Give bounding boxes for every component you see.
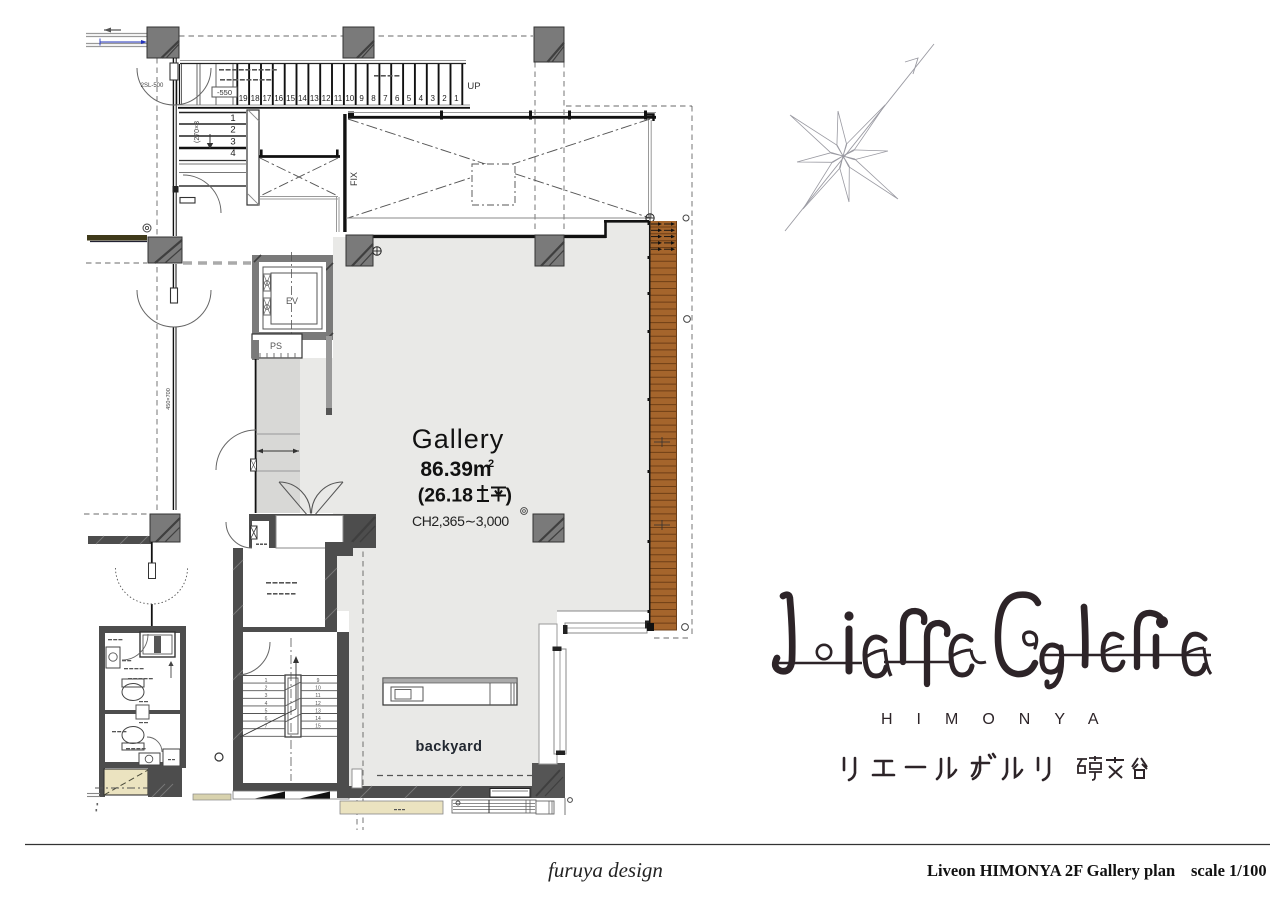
svg-text:(26.18: (26.18	[418, 485, 473, 507]
svg-text:9: 9	[359, 94, 364, 103]
svg-text:(270×3: (270×3	[194, 121, 201, 143]
svg-text:4: 4	[419, 94, 424, 103]
svg-text:CH2,365∼3,000: CH2,365∼3,000	[412, 513, 509, 529]
svg-text:450×700: 450×700	[166, 388, 172, 410]
svg-text:10: 10	[315, 686, 321, 692]
svg-text:scale 1/100: scale 1/100	[1191, 861, 1267, 880]
svg-text:3: 3	[230, 136, 235, 147]
svg-text:19: 19	[239, 94, 248, 103]
svg-text:9: 9	[317, 678, 320, 684]
svg-text:HIMONYA: HIMONYA	[881, 711, 1122, 728]
svg-text:16: 16	[274, 94, 283, 103]
svg-text:6: 6	[395, 94, 400, 103]
svg-text:): )	[506, 485, 513, 507]
svg-text:1: 1	[230, 113, 235, 124]
svg-text:EV: EV	[286, 296, 298, 306]
svg-text:14: 14	[298, 94, 307, 103]
svg-text:furuya design: furuya design	[548, 858, 663, 882]
svg-text:2SL-500: 2SL-500	[141, 83, 164, 89]
svg-text:2: 2	[488, 458, 494, 470]
svg-text:4: 4	[265, 701, 268, 707]
svg-text:10: 10	[345, 94, 354, 103]
svg-text:8: 8	[371, 94, 376, 103]
svg-text:6: 6	[265, 716, 268, 722]
svg-text:PS: PS	[270, 341, 282, 351]
svg-text:7: 7	[383, 94, 388, 103]
svg-text:2: 2	[265, 686, 268, 692]
svg-text:86.39m: 86.39m	[420, 458, 491, 481]
svg-text:14: 14	[315, 716, 321, 722]
svg-text:-550: -550	[217, 88, 232, 97]
svg-text:Liveon HIMONYA 2F Gallery plan: Liveon HIMONYA 2F Gallery plan	[927, 861, 1175, 880]
svg-text:13: 13	[310, 94, 319, 103]
svg-text:UP: UP	[467, 81, 480, 92]
svg-text:12: 12	[315, 701, 321, 707]
svg-text:1: 1	[454, 94, 459, 103]
svg-text:12: 12	[322, 94, 331, 103]
svg-text:2: 2	[230, 125, 235, 136]
svg-text:5: 5	[407, 94, 412, 103]
svg-text:FIX: FIX	[349, 172, 359, 186]
svg-text:Gallery: Gallery	[412, 424, 505, 454]
svg-text:5: 5	[265, 708, 268, 714]
svg-text:4: 4	[230, 148, 235, 159]
svg-text:3: 3	[430, 94, 435, 103]
svg-text:13: 13	[315, 708, 321, 714]
svg-text:15: 15	[286, 94, 295, 103]
svg-text:backyard: backyard	[416, 739, 483, 755]
svg-text:11: 11	[334, 94, 343, 103]
svg-text:11: 11	[315, 693, 320, 699]
svg-text:18: 18	[251, 94, 260, 103]
svg-text:17: 17	[262, 94, 271, 103]
svg-text:2: 2	[442, 94, 447, 103]
svg-text:3: 3	[265, 693, 268, 699]
svg-text:15: 15	[315, 724, 321, 730]
svg-text:1: 1	[265, 678, 268, 684]
